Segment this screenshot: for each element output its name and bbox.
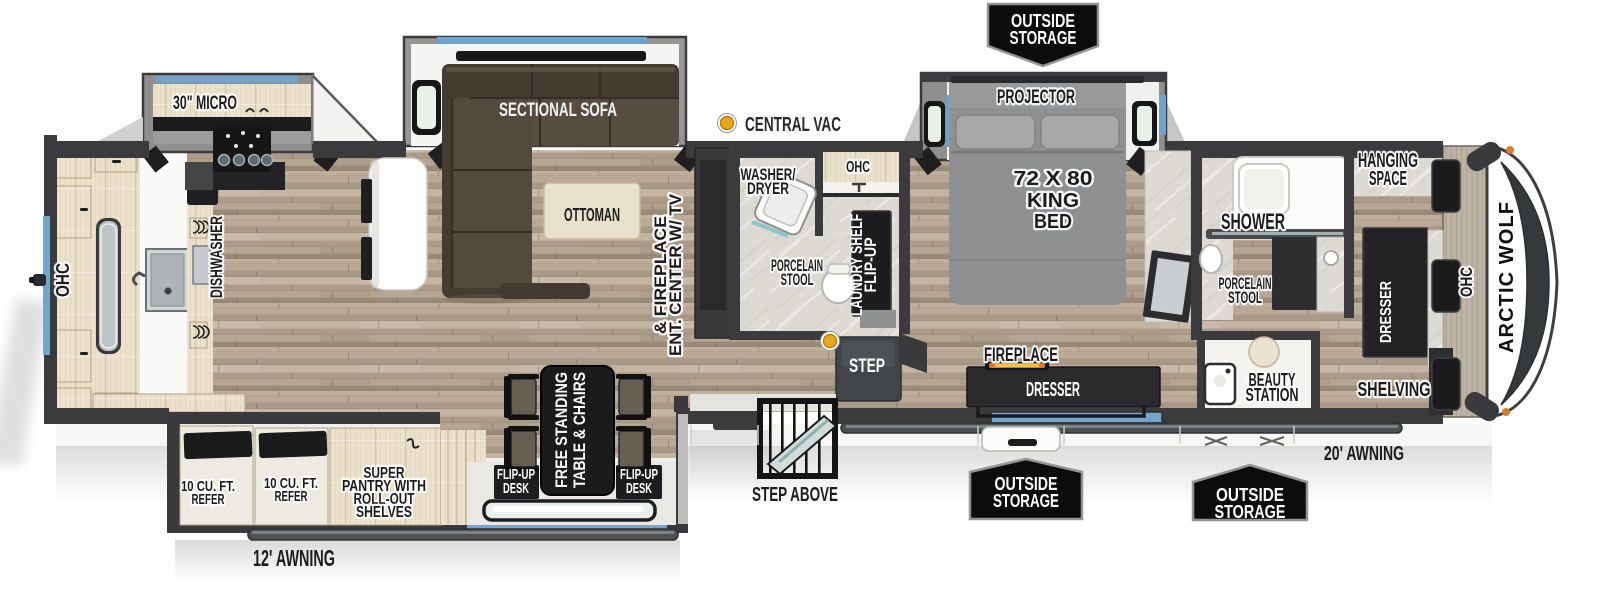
svg-text:SHELVING: SHELVING <box>1358 379 1431 401</box>
svg-text:20' AWNING: 20' AWNING <box>1324 443 1404 465</box>
svg-text:DRESSER: DRESSER <box>1026 379 1080 401</box>
svg-text:& FIREPLACE: & FIREPLACE <box>651 216 670 334</box>
svg-text:OHC: OHC <box>53 263 73 297</box>
svg-text:STOOL: STOOL <box>1228 288 1262 307</box>
svg-text:72 X 80: 72 X 80 <box>1014 168 1093 190</box>
svg-text:DESK: DESK <box>503 480 529 497</box>
svg-text:STORAGE: STORAGE <box>1010 28 1077 48</box>
svg-text:SECTIONAL SOFA: SECTIONAL SOFA <box>499 100 617 121</box>
svg-text:DRYER: DRYER <box>747 179 789 198</box>
svg-text:OHC: OHC <box>846 159 870 176</box>
svg-text:SHELVES: SHELVES <box>356 504 412 521</box>
svg-text:STORAGE: STORAGE <box>993 491 1059 511</box>
svg-text:REFER: REFER <box>275 488 308 505</box>
svg-text:ARCTIC WOLF: ARCTIC WOLF <box>1496 201 1518 353</box>
svg-text:OHC: OHC <box>1457 267 1476 297</box>
svg-text:DESK: DESK <box>626 480 652 497</box>
svg-text:STORAGE: STORAGE <box>1215 502 1286 522</box>
svg-text:STEP ABOVE: STEP ABOVE <box>752 484 838 506</box>
svg-text:30" MICRO: 30" MICRO <box>173 93 237 114</box>
svg-text:KING: KING <box>1027 190 1079 212</box>
svg-text:TABLE & CHAIRS: TABLE & CHAIRS <box>570 372 589 488</box>
svg-text:STEP: STEP <box>849 356 885 377</box>
svg-text:FIREPLACE: FIREPLACE <box>984 345 1058 366</box>
svg-text:DISHWASHER: DISHWASHER <box>207 216 226 298</box>
svg-text:SHOWER: SHOWER <box>1221 209 1285 234</box>
svg-text:OTTOMAN: OTTOMAN <box>564 205 620 225</box>
svg-text:REFER: REFER <box>192 491 225 508</box>
svg-text:DRESSER: DRESSER <box>1378 281 1395 343</box>
svg-text:STATION: STATION <box>1246 385 1299 405</box>
svg-text:SPACE: SPACE <box>1369 168 1407 190</box>
svg-text:STOOL: STOOL <box>781 270 814 289</box>
svg-text:BED: BED <box>1034 211 1072 233</box>
svg-text:CENTRAL VAC: CENTRAL VAC <box>745 114 841 136</box>
svg-text:PROJECTOR: PROJECTOR <box>997 87 1075 108</box>
svg-text:12' AWNING: 12' AWNING <box>253 545 335 571</box>
svg-text:LAUNDRY SHELF: LAUNDRY SHELF <box>847 214 866 316</box>
svg-text:FREE STANDING: FREE STANDING <box>552 372 571 488</box>
